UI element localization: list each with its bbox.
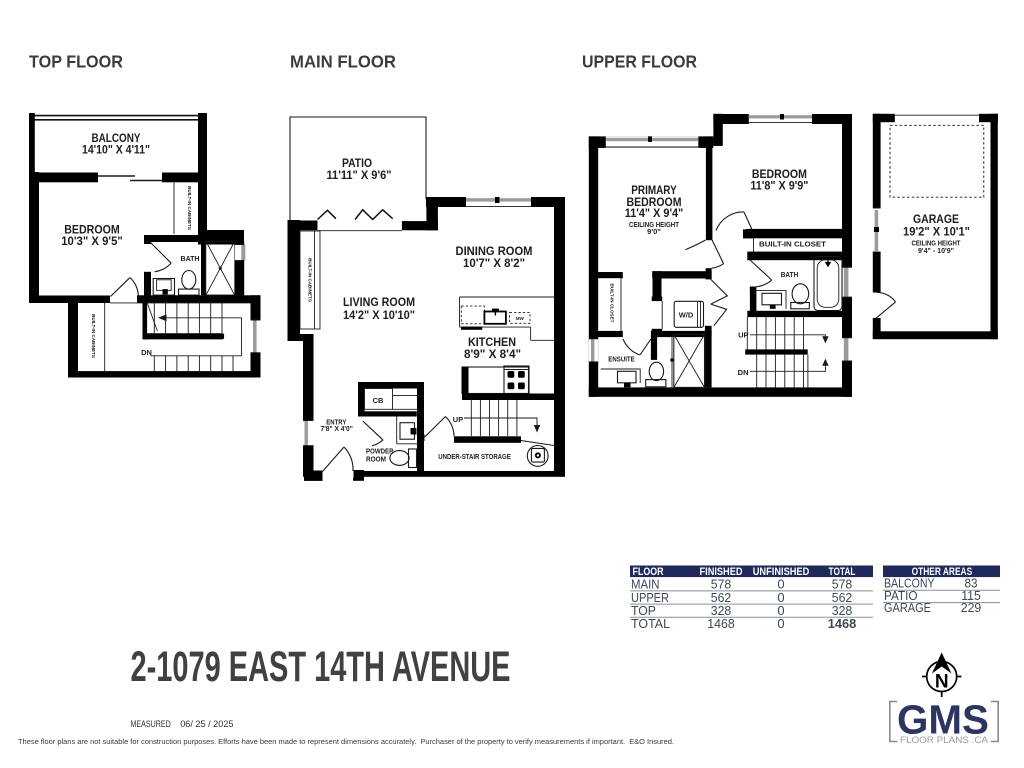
svg-text:BUILT-IN CABINETS: BUILT-IN CABINETS <box>187 186 192 230</box>
svg-text:9'4" - 10'9": 9'4" - 10'9" <box>918 246 954 255</box>
svg-text:DN: DN <box>738 368 749 377</box>
svg-text:11'4" X 9'4": 11'4" X 9'4" <box>625 208 684 220</box>
svg-text:BUILT-IN CABINETS: BUILT-IN CABINETS <box>91 314 96 358</box>
svg-text:BUILT-IN CLOSET: BUILT-IN CLOSET <box>610 284 615 323</box>
svg-text:ENSUITE: ENSUITE <box>608 354 635 363</box>
svg-text:CB: CB <box>373 396 384 405</box>
svg-text:UP: UP <box>738 330 748 339</box>
svg-text:19'2" X 10'1": 19'2" X 10'1" <box>903 225 970 239</box>
svg-text:BEDROOM: BEDROOM <box>752 169 807 181</box>
svg-text:7'8" X 4'0": 7'8" X 4'0" <box>321 424 354 433</box>
svg-text:BUILT-IN CLOSET: BUILT-IN CLOSET <box>759 239 826 248</box>
svg-text:06/ 25 / 2025: 06/ 25 / 2025 <box>180 719 233 730</box>
svg-text:These floor plans are not suit: These floor plans are not suitable for c… <box>18 739 674 746</box>
svg-text:MW: MW <box>516 316 525 321</box>
svg-text:N: N <box>935 672 949 693</box>
svg-text:14'10" X 4'11": 14'10" X 4'11" <box>82 145 150 157</box>
svg-text:11'11" X 9'6": 11'11" X 9'6" <box>327 168 392 182</box>
svg-text:BALCONY: BALCONY <box>92 133 141 145</box>
svg-text:0: 0 <box>777 616 784 631</box>
svg-text:FLOOR PLANS .CA: FLOOR PLANS .CA <box>900 735 989 745</box>
svg-text:BATH: BATH <box>181 254 200 263</box>
svg-text:1468: 1468 <box>828 616 857 631</box>
svg-text:UNDER-STAIR STORAGE: UNDER-STAIR STORAGE <box>438 452 511 461</box>
svg-text:UP: UP <box>453 415 463 424</box>
svg-text:BUILT-IN CABINETS: BUILT-IN CABINETS <box>308 258 313 302</box>
svg-text:PRIMARY: PRIMARY <box>631 185 677 197</box>
svg-text:10'3" X 9'5": 10'3" X 9'5" <box>61 236 123 248</box>
svg-text:1468: 1468 <box>707 616 735 631</box>
svg-text:LIVING ROOM: LIVING ROOM <box>343 295 415 309</box>
svg-text:TOP FLOOR: TOP FLOOR <box>29 52 123 72</box>
svg-text:9'0": 9'0" <box>647 227 661 236</box>
svg-text:2-1079 EAST 14TH AVENUE: 2-1079 EAST 14TH AVENUE <box>131 643 511 691</box>
svg-text:MAIN FLOOR: MAIN FLOOR <box>290 52 396 72</box>
svg-text:TOTAL: TOTAL <box>631 616 670 631</box>
svg-text:W/D: W/D <box>679 311 694 320</box>
svg-text:14'2" X 10'10": 14'2" X 10'10" <box>343 308 415 322</box>
svg-text:8'9" X 8'4": 8'9" X 8'4" <box>464 347 521 361</box>
svg-text:BATH: BATH <box>781 270 799 279</box>
svg-text:UPPER FLOOR: UPPER FLOOR <box>582 52 697 72</box>
svg-text:11'8" X 9'9": 11'8" X 9'9" <box>750 181 808 193</box>
svg-text:ROOM: ROOM <box>366 454 386 463</box>
svg-text:DN: DN <box>141 348 152 357</box>
svg-text:BEDROOM: BEDROOM <box>64 225 120 237</box>
svg-text:10'7" X 8'2": 10'7" X 8'2" <box>463 256 525 270</box>
svg-text:MEASURED: MEASURED <box>131 719 171 730</box>
